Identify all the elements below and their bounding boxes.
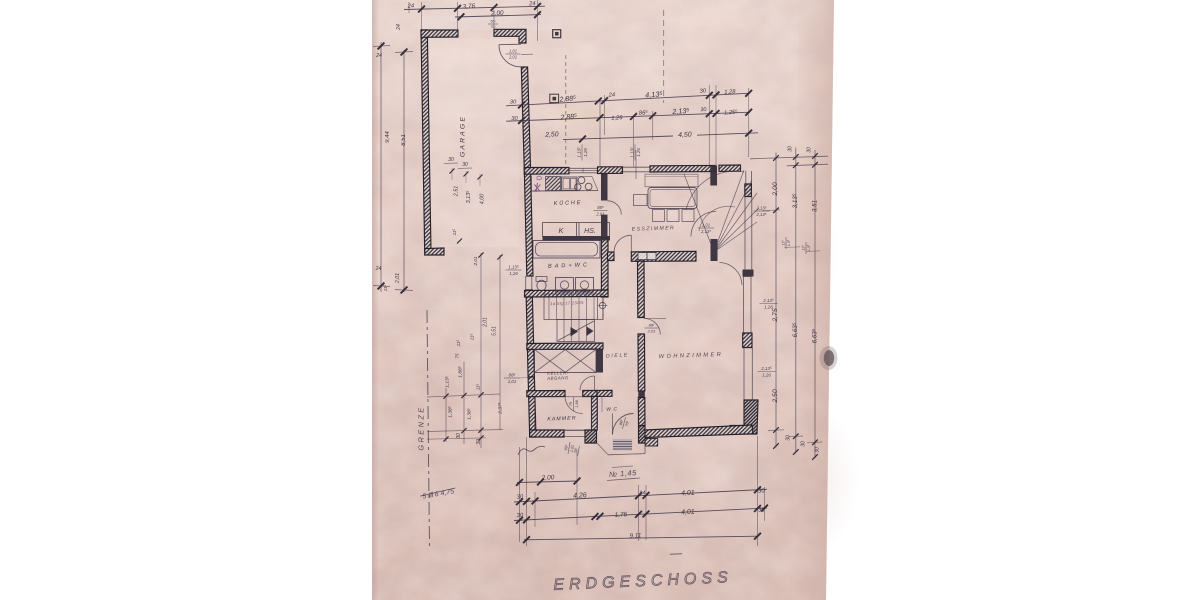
svg-text:11⁵: 11⁵ bbox=[383, 285, 388, 292]
svg-text:30: 30 bbox=[448, 157, 454, 163]
svg-text:DIELE: DIELE bbox=[606, 352, 629, 359]
svg-text:2,37⁵: 2,37⁵ bbox=[498, 402, 504, 414]
svg-text:2,01: 2,01 bbox=[483, 317, 489, 328]
svg-text:ABGANG: ABGANG bbox=[546, 375, 569, 381]
svg-text:75: 75 bbox=[455, 353, 460, 359]
svg-text:1,88: 1,88 bbox=[574, 399, 579, 407]
svg-text:1,26: 1,26 bbox=[636, 148, 641, 157]
svg-text:4,26: 4,26 bbox=[573, 492, 587, 500]
svg-text:88¹: 88¹ bbox=[649, 322, 655, 327]
svg-text:HS.: HS. bbox=[584, 228, 596, 235]
svg-text:4,13⁵: 4,13⁵ bbox=[645, 89, 663, 99]
svg-text:30: 30 bbox=[516, 513, 524, 519]
svg-text:30: 30 bbox=[700, 88, 708, 94]
svg-text:1,88⁵: 1,88⁵ bbox=[458, 366, 464, 377]
svg-text:1,26: 1,26 bbox=[611, 115, 623, 122]
svg-text:86⁵: 86⁵ bbox=[639, 109, 649, 117]
svg-text:6,63⁵: 6,63⁵ bbox=[792, 322, 799, 337]
svg-text:30: 30 bbox=[815, 447, 821, 453]
svg-text:3,13⁵: 3,13⁵ bbox=[792, 193, 799, 208]
svg-text:11⁵: 11⁵ bbox=[476, 384, 481, 391]
svg-text:1,38⁵: 1,38⁵ bbox=[448, 406, 454, 417]
svg-text:3,51: 3,51 bbox=[812, 200, 819, 212]
svg-text:4,01: 4,01 bbox=[681, 490, 695, 498]
svg-text:11⁵: 11⁵ bbox=[456, 340, 461, 347]
svg-text:1,25⁵: 1,25⁵ bbox=[724, 108, 739, 116]
svg-text:2,50: 2,50 bbox=[544, 131, 559, 139]
svg-text:1,13⁵: 1,13⁵ bbox=[445, 376, 451, 387]
svg-text:11⁵: 11⁵ bbox=[801, 245, 805, 251]
svg-text:50¹: 50¹ bbox=[491, 19, 497, 23]
svg-text:24: 24 bbox=[608, 92, 616, 99]
svg-text:KÜCHE: KÜCHE bbox=[554, 199, 583, 207]
svg-text:88⁵: 88⁵ bbox=[509, 372, 516, 377]
svg-text:11⁵: 11⁵ bbox=[781, 240, 785, 246]
svg-text:2,13⁵: 2,13⁵ bbox=[756, 212, 767, 217]
svg-text:24: 24 bbox=[375, 53, 382, 59]
svg-text:2,13⁵: 2,13⁵ bbox=[756, 205, 767, 210]
svg-text:2,00: 2,00 bbox=[490, 10, 504, 18]
svg-text:1,76: 1,76 bbox=[615, 511, 628, 519]
svg-text:24: 24 bbox=[528, 1, 536, 8]
svg-text:30: 30 bbox=[801, 441, 807, 447]
svg-text:1,3⁵: 1,3⁵ bbox=[787, 239, 791, 246]
svg-text:2,13⁵: 2,13⁵ bbox=[760, 366, 772, 371]
svg-text:30: 30 bbox=[788, 146, 794, 152]
svg-text:30: 30 bbox=[462, 162, 468, 168]
svg-text:2,01: 2,01 bbox=[395, 273, 401, 284]
svg-text:1,01: 1,01 bbox=[508, 379, 517, 384]
svg-text:KAMMER: KAMMER bbox=[547, 415, 577, 422]
svg-text:1,01: 1,01 bbox=[509, 48, 517, 53]
svg-text:4,00: 4,00 bbox=[480, 194, 486, 205]
svg-text:1,38⁵: 1,38⁵ bbox=[467, 408, 473, 419]
svg-text:30: 30 bbox=[510, 100, 517, 106]
svg-text:30: 30 bbox=[511, 116, 518, 122]
svg-text:GARAGE: GARAGE bbox=[460, 115, 467, 157]
svg-text:2,13⁵: 2,13⁵ bbox=[762, 298, 774, 303]
svg-text:2,01: 2,01 bbox=[508, 55, 517, 60]
svg-text:1,26: 1,26 bbox=[509, 271, 518, 276]
svg-text:3,13⁵: 3,13⁵ bbox=[466, 190, 472, 203]
svg-text:1,26: 1,26 bbox=[583, 148, 588, 157]
svg-text:2,01: 2,01 bbox=[647, 329, 656, 334]
svg-text:24: 24 bbox=[638, 490, 645, 496]
svg-text:2,51: 2,51 bbox=[454, 186, 460, 198]
svg-text:1,13⁵: 1,13⁵ bbox=[576, 147, 581, 158]
svg-text:GRENZE: GRENZE bbox=[417, 405, 426, 450]
svg-text:70¹: 70¹ bbox=[491, 25, 497, 29]
svg-text:30: 30 bbox=[786, 435, 792, 441]
svg-text:30: 30 bbox=[807, 147, 813, 153]
svg-text:6,63⁵: 6,63⁵ bbox=[812, 328, 819, 343]
svg-text:9,11: 9,11 bbox=[629, 532, 642, 539]
svg-text:2,01: 2,01 bbox=[473, 256, 478, 266]
svg-text:24: 24 bbox=[375, 266, 382, 272]
svg-text:11⁵: 11⁵ bbox=[470, 334, 475, 341]
svg-text:1,26: 1,26 bbox=[762, 373, 771, 378]
svg-text:4,01: 4,01 bbox=[681, 509, 695, 517]
svg-text:3,76: 3,76 bbox=[462, 3, 475, 11]
svg-text:30: 30 bbox=[758, 507, 766, 513]
svg-text:4,50: 4,50 bbox=[678, 131, 692, 139]
svg-text:1,26: 1,26 bbox=[764, 305, 773, 310]
svg-text:8,51: 8,51 bbox=[401, 134, 407, 146]
svg-text:2,00: 2,00 bbox=[772, 182, 779, 196]
svg-text:30: 30 bbox=[758, 488, 766, 494]
svg-text:2,00: 2,00 bbox=[540, 474, 554, 481]
svg-text:88⁵: 88⁵ bbox=[597, 205, 604, 210]
svg-text:1,28: 1,28 bbox=[724, 89, 736, 96]
svg-text:2,75: 2,75 bbox=[772, 308, 779, 322]
svg-text:1,3⁵: 1,3⁵ bbox=[807, 244, 811, 251]
svg-text:9,44: 9,44 bbox=[385, 131, 391, 143]
svg-text:30: 30 bbox=[700, 107, 706, 113]
svg-text:W.C: W.C bbox=[606, 406, 618, 412]
svg-text:11⁵: 11⁵ bbox=[452, 229, 457, 236]
svg-text:30: 30 bbox=[476, 439, 482, 445]
svg-text:2,50: 2,50 bbox=[772, 389, 779, 403]
svg-text:30: 30 bbox=[516, 494, 524, 500]
svg-text:1,13⁵: 1,13⁵ bbox=[508, 264, 519, 269]
svg-text:5,51: 5,51 bbox=[492, 326, 498, 336]
svg-text:24: 24 bbox=[407, 3, 415, 10]
svg-text:2,13⁵: 2,13⁵ bbox=[671, 106, 690, 116]
svg-text:24: 24 bbox=[396, 24, 402, 31]
svg-text:30: 30 bbox=[456, 433, 462, 439]
